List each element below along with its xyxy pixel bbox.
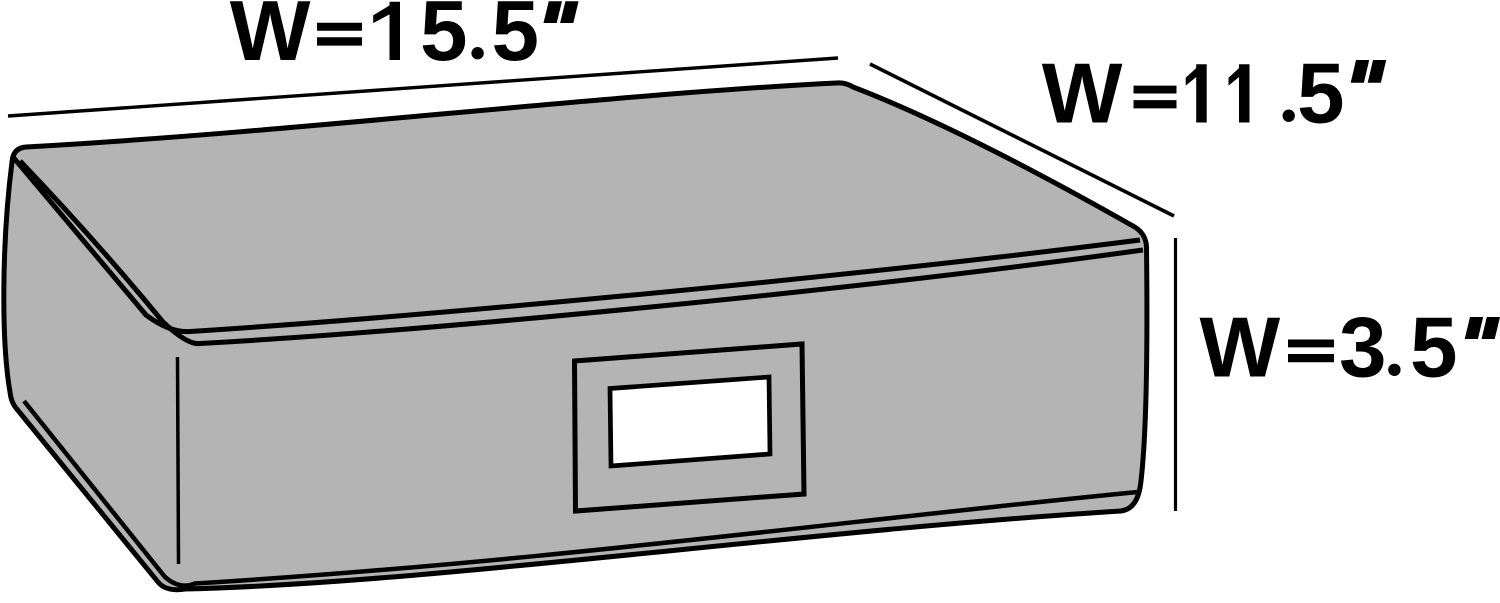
svg-text:5: 5 <box>1297 47 1345 142</box>
svg-text:5: 5 <box>492 0 540 79</box>
svg-text:W: W <box>1200 300 1281 395</box>
svg-text:W: W <box>230 0 311 79</box>
svg-text:5: 5 <box>420 0 468 79</box>
svg-text:5: 5 <box>1410 300 1458 395</box>
svg-text:3: 3 <box>1339 300 1387 395</box>
svg-text:W: W <box>1042 47 1123 142</box>
